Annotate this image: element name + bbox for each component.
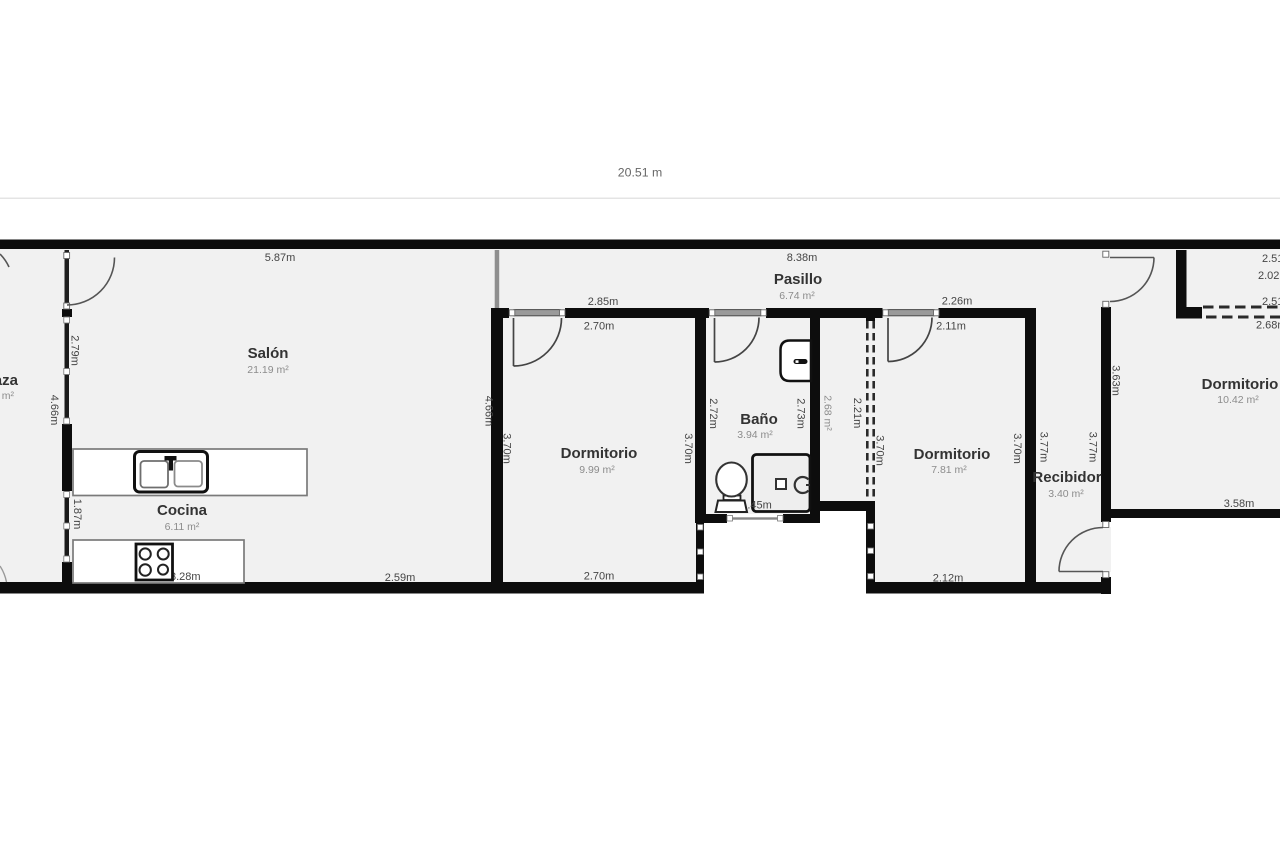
svg-text:4.66m: 4.66m xyxy=(483,396,495,427)
svg-text:2.72m: 2.72m xyxy=(707,398,719,429)
svg-text:2.70m: 2.70m xyxy=(584,571,615,583)
svg-text:3.77m: 3.77m xyxy=(1087,432,1099,463)
svg-text:2.26m: 2.26m xyxy=(942,296,973,308)
svg-text:Dormitorio: Dormitorio xyxy=(561,445,638,462)
svg-text:10.42 m²: 10.42 m² xyxy=(1217,394,1259,406)
svg-text:6.74 m²: 6.74 m² xyxy=(779,290,815,302)
svg-text:7.81 m²: 7.81 m² xyxy=(931,464,967,476)
svg-text:Salón: Salón xyxy=(248,345,289,362)
svg-text:Pasillo: Pasillo xyxy=(774,271,822,288)
svg-text:20.51 m: 20.51 m xyxy=(618,166,662,180)
svg-text:3.77m: 3.77m xyxy=(1038,432,1050,463)
svg-text:3.70m: 3.70m xyxy=(501,433,513,464)
svg-text:2.85m: 2.85m xyxy=(588,296,619,308)
svg-text:3.28m: 3.28m xyxy=(170,571,201,583)
svg-text:5.87m: 5.87m xyxy=(265,252,296,264)
svg-text:Dormitorio: Dormitorio xyxy=(914,446,991,463)
svg-text:2.51m: 2.51m xyxy=(1262,296,1280,308)
svg-text:3.40 m²: 3.40 m² xyxy=(1048,488,1084,500)
svg-text:8.38m: 8.38m xyxy=(787,252,818,264)
svg-text:3.70m: 3.70m xyxy=(682,433,694,464)
svg-text:2.59m: 2.59m xyxy=(385,572,416,584)
svg-text:3.70m: 3.70m xyxy=(874,435,886,466)
svg-text:6.11 m²: 6.11 m² xyxy=(165,521,200,533)
svg-text:8 m²: 8 m² xyxy=(0,390,15,402)
svg-text:4.66m: 4.66m xyxy=(48,395,60,426)
svg-text:2.12m: 2.12m xyxy=(933,573,964,585)
svg-text:2.70m: 2.70m xyxy=(584,321,615,333)
svg-text:2.68 m²: 2.68 m² xyxy=(822,395,834,431)
svg-text:2.73m: 2.73m xyxy=(795,398,807,429)
svg-text:Terraza: Terraza xyxy=(0,372,19,389)
svg-text:3.63m: 3.63m xyxy=(1110,365,1122,396)
svg-text:1.87m: 1.87m xyxy=(71,499,83,530)
svg-text:2.02m: 2.02m xyxy=(1258,270,1280,282)
svg-text:Dormitorio: Dormitorio xyxy=(1202,376,1279,393)
svg-text:Cocina: Cocina xyxy=(157,502,208,519)
svg-text:2.79m: 2.79m xyxy=(69,335,81,366)
svg-text:2.11m: 2.11m xyxy=(936,321,966,333)
svg-text:Recibidor: Recibidor xyxy=(1032,469,1101,486)
svg-text:Baño: Baño xyxy=(740,411,778,428)
svg-text:2.21m: 2.21m xyxy=(851,398,863,429)
svg-text:3.94 m²: 3.94 m² xyxy=(737,429,773,441)
svg-text:3.70m: 3.70m xyxy=(1011,433,1023,464)
svg-text:9.99 m²: 9.99 m² xyxy=(579,464,615,476)
svg-text:21.19 m²: 21.19 m² xyxy=(247,364,289,376)
svg-text:3.58m: 3.58m xyxy=(1224,498,1255,510)
svg-text:2.68m: 2.68m xyxy=(1256,320,1280,332)
svg-text:2.51m: 2.51m xyxy=(1262,253,1280,265)
